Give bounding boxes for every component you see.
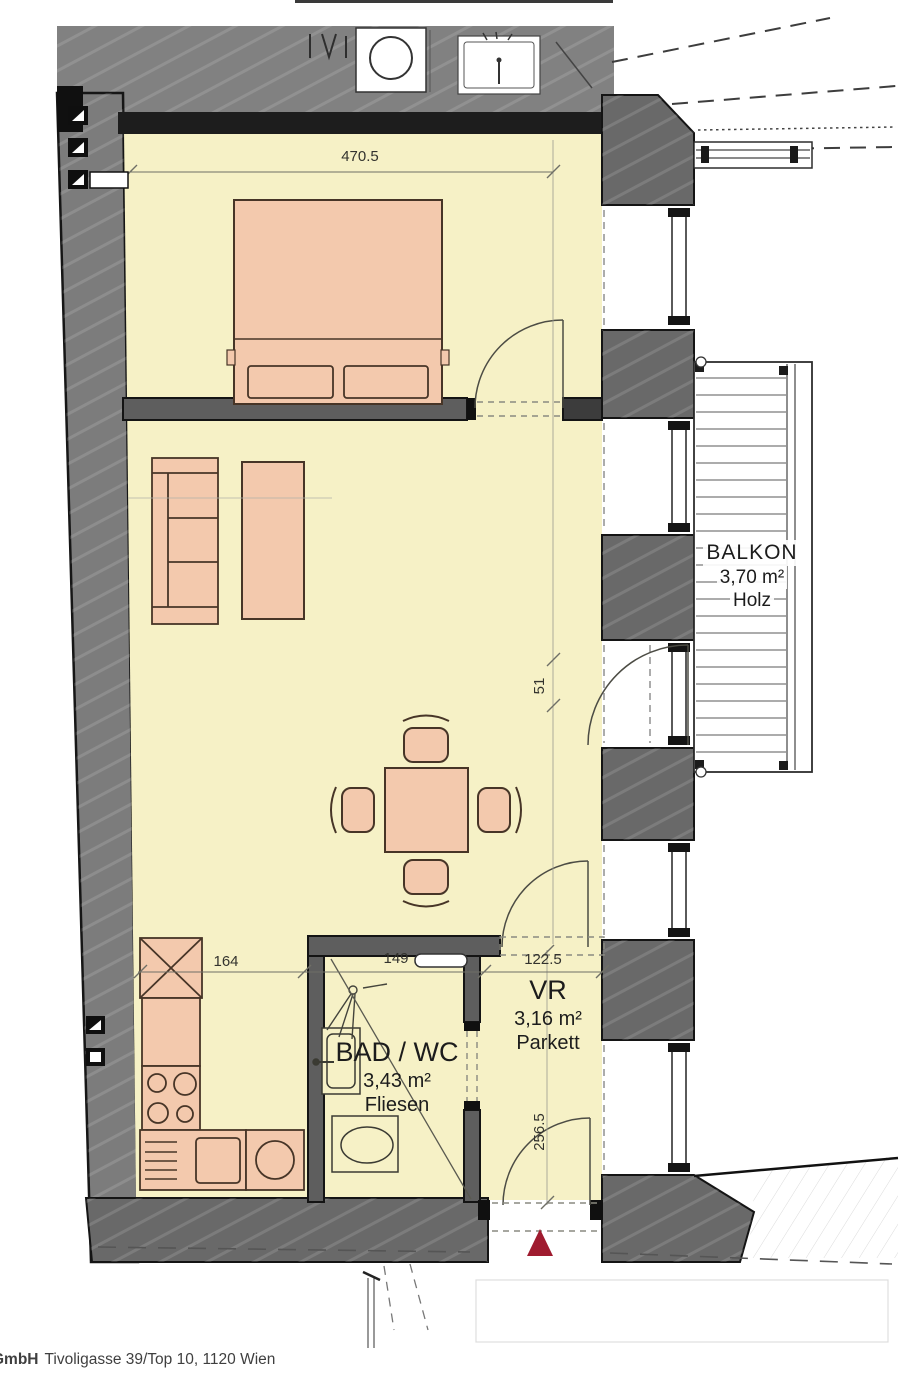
dim-bedroom-width: 470.5 [315, 148, 405, 165]
toilet [332, 1116, 398, 1172]
bed [227, 200, 449, 404]
bad-floor: Fliesen [318, 1093, 476, 1117]
room-label-bad-wc: BAD / WC 3,43 m² Fliesen [318, 1036, 476, 1118]
balkon-floor: Holz [730, 589, 774, 612]
neighbor-unit-top [57, 0, 614, 118]
floor-plan-drawing [0, 0, 900, 1375]
sofa [152, 458, 218, 624]
footer-address: GmbHTivoligasse 39/Top 10, 1120 Wien [0, 1351, 275, 1369]
dim-vr-segment: 122.5 [512, 951, 574, 968]
washing-machine [356, 28, 426, 92]
entrance-marker [527, 1229, 553, 1256]
footer-company: GmbH [0, 1351, 39, 1368]
footer-address-text: Tivoligasse 39/Top 10, 1120 Wien [45, 1351, 276, 1368]
vr-floor: Parkett [492, 1031, 604, 1055]
room-label-vr: VR 3,16 m² Parkett [492, 974, 604, 1056]
dim-door-offset: 51 [531, 666, 549, 706]
balkon-area: 3,70 m² [717, 566, 787, 589]
room-label-balkon: BALKON 3,70 m² Holz [690, 540, 814, 612]
vr-name: VR [492, 974, 604, 1007]
vr-area: 3,16 m² [492, 1007, 604, 1031]
dim-vr-depth: 256.5 [531, 1100, 549, 1164]
french-balcony-railing [694, 142, 812, 168]
coffee-table [242, 462, 304, 619]
bad-area: 3,43 m² [318, 1069, 476, 1093]
neighbor-sink [458, 32, 540, 94]
dim-bath-segment: 149 [368, 950, 424, 967]
balkon-name: BALKON [703, 540, 800, 566]
wall-bottom [86, 1198, 488, 1262]
bad-name: BAD / WC [318, 1036, 476, 1069]
floor-plan-canvas: BALKON 3,70 m² Holz BAD / WC 3,43 m² Fli… [0, 0, 900, 1375]
wall-top [118, 112, 614, 134]
dim-kitchen-segment: 164 [198, 953, 254, 970]
